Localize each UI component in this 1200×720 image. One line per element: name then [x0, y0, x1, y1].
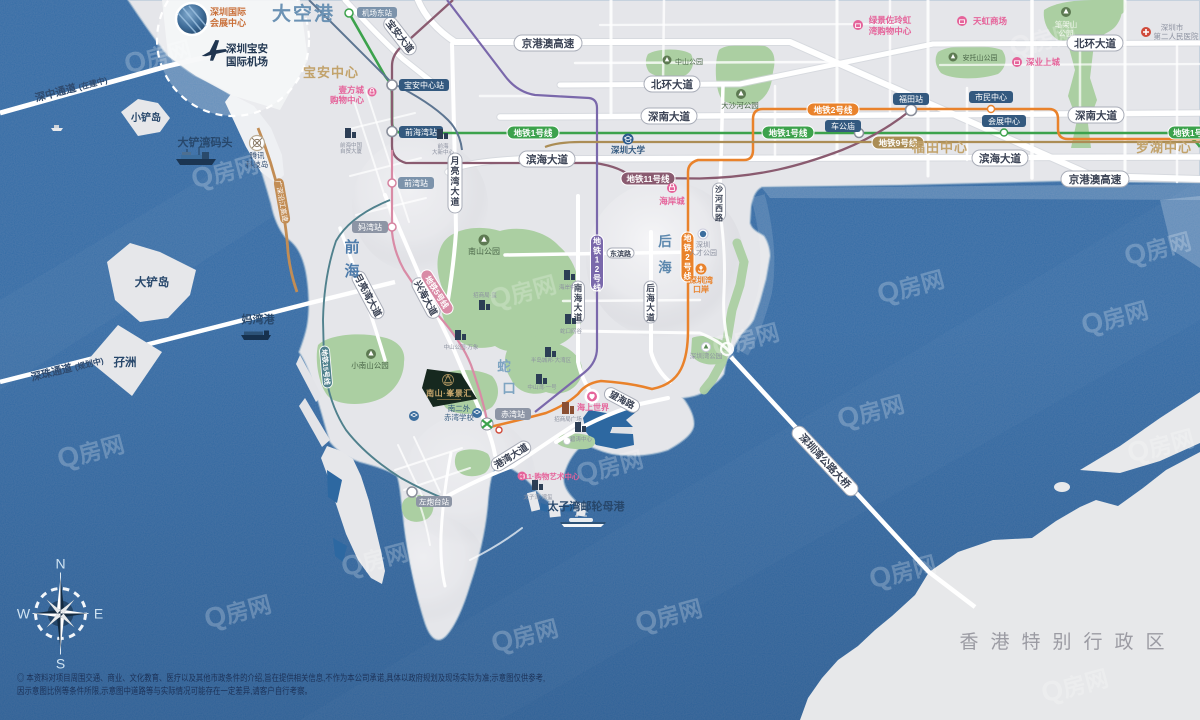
svg-text:京港澳高速: 京港澳高速 [522, 37, 575, 50]
svg-text:会展中心: 会展中心 [210, 17, 246, 28]
svg-text:香港特别行政区: 香港特别行政区 [959, 631, 1176, 653]
svg-text:蛇口网谷: 蛇口网谷 [560, 327, 583, 335]
svg-text:K11·购物艺术中心: K11·购物艺术中心 [519, 471, 580, 481]
svg-text:北环大道: 北环大道 [651, 78, 693, 91]
svg-text:前海: 前海 [437, 142, 449, 150]
svg-text:大空港: 大空港 [272, 2, 335, 25]
svg-text:沙河西路: 沙河西路 [715, 185, 724, 223]
svg-text:前海湾站: 前海湾站 [405, 127, 437, 137]
svg-text:第二人民医院: 第二人民医院 [1154, 31, 1199, 41]
svg-text:E: E [94, 606, 103, 622]
svg-text:京港澳高速: 京港澳高速 [1069, 173, 1122, 186]
svg-text:孖洲: 孖洲 [114, 356, 137, 369]
svg-text:赤湾站: 赤湾站 [501, 409, 525, 419]
svg-text:深业上城: 深业上城 [1026, 57, 1061, 67]
svg-text:车公庙: 车公庙 [831, 121, 855, 131]
svg-text:小南山公园: 小南山公园 [351, 360, 389, 370]
svg-text:招商局广场: 招商局广场 [554, 415, 582, 423]
svg-text:南山公园: 南山公园 [468, 246, 500, 256]
svg-text:中山湾·一号: 中山湾·一号 [527, 383, 557, 391]
svg-text:人才公园: 人才公园 [689, 248, 717, 257]
svg-text:地铁2号线: 地铁2号线 [814, 105, 853, 115]
svg-text:赤湾学校: 赤湾学校 [444, 412, 474, 422]
svg-text:湾购物中心: 湾购物中心 [869, 26, 912, 36]
svg-text:安托山公园: 安托山公园 [963, 53, 998, 62]
svg-text:前湾站: 前湾站 [404, 178, 428, 188]
svg-text:地铁11号线: 地铁11号线 [627, 174, 670, 184]
svg-text:因示意图比例等条件所限,示意图中道路等与实际情况可能存在一定: 因示意图比例等条件所限,示意图中道路等与实际情况可能存在一定差异,请客户自行考察… [17, 685, 312, 696]
svg-text:北环大道: 北环大道 [1074, 37, 1116, 50]
svg-text:深圳湾: 深圳湾 [689, 275, 713, 285]
svg-text:S: S [56, 656, 65, 672]
svg-text:深圳: 深圳 [696, 240, 710, 249]
svg-text:壹方城: 壹方城 [338, 85, 364, 95]
svg-text:南二外: 南二外 [448, 403, 471, 413]
svg-text:后海大道: 后海大道 [646, 283, 655, 322]
svg-text:海岸城: 海岸城 [659, 196, 685, 206]
svg-text:中山公园·万象: 中山公园·万象 [444, 343, 479, 351]
svg-text:大沙河公园: 大沙河公园 [721, 100, 759, 110]
svg-text:小铲岛: 小铲岛 [130, 111, 161, 124]
svg-text:深南大道: 深南大道 [1075, 109, 1117, 122]
svg-text:会展中心: 会展中心 [988, 116, 1020, 126]
svg-text:大铲岛: 大铲岛 [135, 275, 170, 289]
svg-text:太子湾邮轮母港: 太子湾邮轮母港 [547, 499, 626, 513]
svg-text:购物中心: 购物中心 [329, 95, 365, 105]
svg-text:后: 后 [658, 233, 672, 249]
svg-text:海: 海 [658, 259, 672, 275]
svg-text:深圳市: 深圳市 [1161, 22, 1184, 32]
svg-text:东滨路: 东滨路 [610, 249, 632, 258]
svg-text:深圳宝安: 深圳宝安 [226, 42, 268, 55]
svg-text:绿景佐玲虹: 绿景佐玲虹 [869, 15, 912, 25]
svg-text:海: 海 [344, 262, 359, 280]
svg-text:海岸中心: 海岸中心 [559, 283, 582, 291]
svg-text:福田中心: 福田中心 [911, 140, 968, 155]
svg-text:自贸大厦: 自贸大厦 [340, 147, 363, 155]
svg-text:海上世界: 海上世界 [577, 402, 610, 412]
svg-text:碧涛中心: 碧涛中心 [570, 435, 593, 443]
svg-text:地铁1号线: 地铁1号线 [514, 128, 553, 138]
svg-text:国际机场: 国际机场 [226, 55, 268, 68]
svg-text:中山公园: 中山公园 [675, 57, 703, 66]
svg-text:深圳国际: 深圳国际 [210, 6, 246, 17]
svg-text:大新中心: 大新中心 [432, 148, 455, 156]
svg-text:半岛城邦·大湾区: 半岛城邦·大湾区 [531, 356, 572, 364]
svg-text:深圳大学: 深圳大学 [611, 145, 646, 155]
svg-text:地铁1号线: 地铁1号线 [769, 128, 808, 138]
svg-text:左炮台站: 左炮台站 [419, 497, 449, 507]
svg-text:南山·峯景汇: 南山·峯景汇 [426, 388, 472, 398]
svg-text:妈湾站: 妈湾站 [358, 222, 382, 232]
svg-text:地铁1号: 地铁1号 [1173, 128, 1200, 138]
svg-text:福田站: 福田站 [899, 94, 923, 104]
svg-text:宝安中心: 宝安中心 [303, 65, 359, 80]
svg-text:滨海大道: 滨海大道 [526, 153, 568, 166]
svg-text:机场东站: 机场东站 [362, 8, 392, 18]
svg-text:W: W [17, 606, 31, 622]
svg-text:罗湖中心: 罗湖中心 [1136, 140, 1192, 155]
svg-text:滨海大道: 滨海大道 [979, 152, 1021, 165]
svg-text:月亮湾大道: 月亮湾大道 [449, 156, 459, 207]
svg-text:深南大道: 深南大道 [648, 110, 690, 123]
svg-text:宝安中心站: 宝安中心站 [404, 80, 444, 90]
svg-text:前: 前 [344, 238, 359, 256]
svg-text:口: 口 [502, 381, 516, 396]
svg-text:市民中心: 市民中心 [975, 92, 1007, 102]
svg-text:口岸: 口岸 [693, 284, 709, 294]
svg-text:天虹商场: 天虹商场 [973, 16, 1008, 26]
svg-text:太子湾·湾玺: 太子湾·湾玺 [523, 493, 553, 501]
svg-text:N: N [55, 556, 65, 572]
svg-text:蛇: 蛇 [497, 358, 511, 374]
svg-text:妈湾港: 妈湾港 [242, 312, 276, 326]
svg-text:◎ 本资料对项目周围交通、商业、文化教育、医疗以及其他市政条: ◎ 本资料对项目周围交通、商业、文化教育、医疗以及其他市政条件的介绍,旨在提供相… [17, 672, 545, 683]
svg-text:前海中国: 前海中国 [340, 141, 363, 149]
